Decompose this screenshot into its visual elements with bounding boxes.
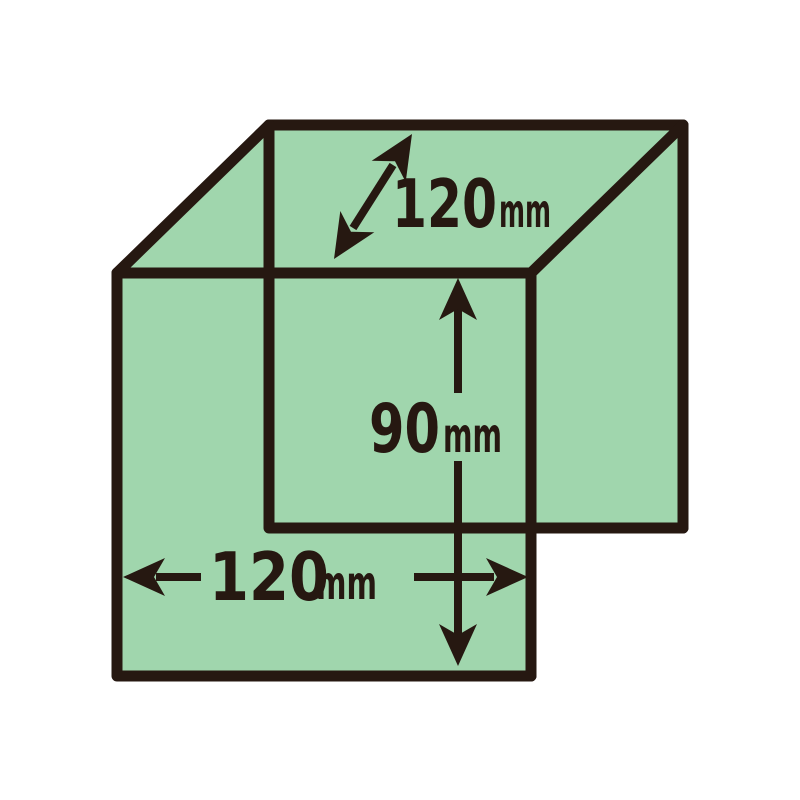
width-dimension-value: 120 <box>209 538 329 616</box>
diagram-canvas: 120 mm 90 mm 120 mm <box>0 0 800 800</box>
width-dimension-unit: mm <box>316 556 377 610</box>
height-dimension-value: 90 <box>369 390 440 469</box>
box-dimension-diagram: 120 mm 90 mm 120 mm <box>0 0 800 800</box>
height-dimension-unit: mm <box>443 408 502 464</box>
depth-dimension-value: 120 <box>392 165 497 243</box>
depth-dimension-unit: mm <box>499 184 551 238</box>
